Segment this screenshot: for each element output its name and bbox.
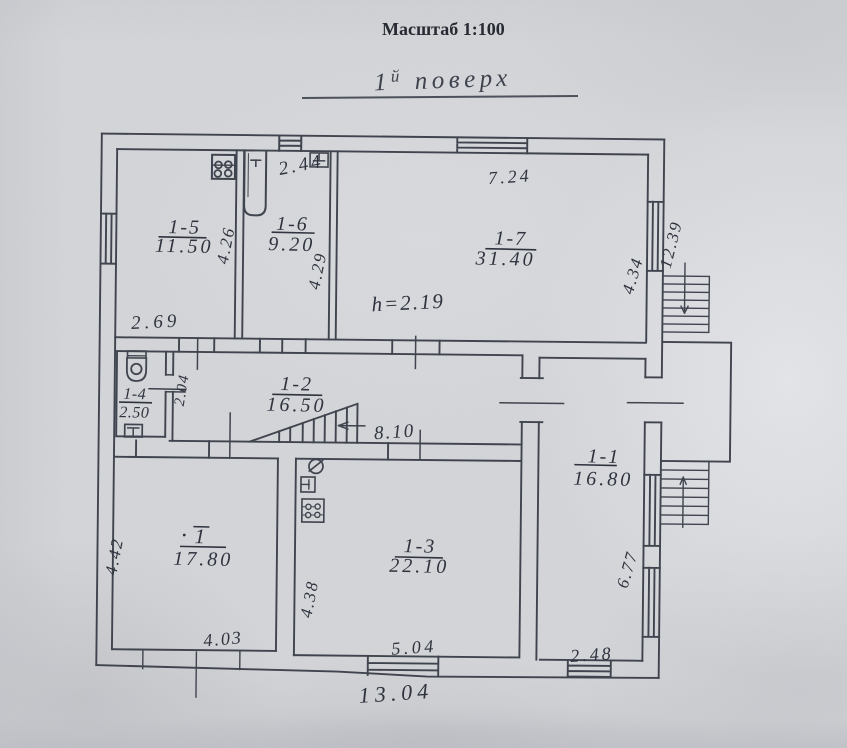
svg-text:9.20: 9.20 [268,233,315,256]
svg-text:16.80: 16.80 [573,468,633,491]
svg-text:5.04: 5.04 [391,636,438,659]
svg-text:2.44: 2.44 [277,151,325,180]
svg-text:31.40: 31.40 [474,247,535,270]
svg-text:8.10: 8.10 [373,421,416,445]
svg-text:1-4: 1-4 [123,386,146,403]
svg-text:4.29: 4.29 [304,250,330,291]
svg-text:17.80: 17.80 [173,548,233,571]
svg-text:6.77: 6.77 [613,549,642,591]
svg-text:22.10: 22.10 [389,555,449,578]
svg-text:2.50: 2.50 [119,404,149,422]
svg-text:11.50: 11.50 [155,235,214,258]
svg-text:4.03: 4.03 [203,627,244,650]
svg-text:7.24: 7.24 [487,165,532,188]
svg-text:1-2: 1-2 [280,373,313,396]
svg-text:4.34: 4.34 [618,255,647,297]
svg-text:12.39: 12.39 [656,219,686,270]
svg-text:4.38: 4.38 [296,579,322,620]
svg-text:13.04: 13.04 [358,678,434,708]
svg-text:1-7: 1-7 [494,227,527,250]
svg-text:2.69: 2.69 [131,311,181,334]
svg-text:16.50: 16.50 [266,394,326,417]
svg-text:2.48: 2.48 [570,643,615,666]
svg-text:4.42: 4.42 [101,536,127,577]
svg-text:1: 1 [194,524,206,548]
svg-text:h=2.19: h=2.19 [371,289,446,317]
